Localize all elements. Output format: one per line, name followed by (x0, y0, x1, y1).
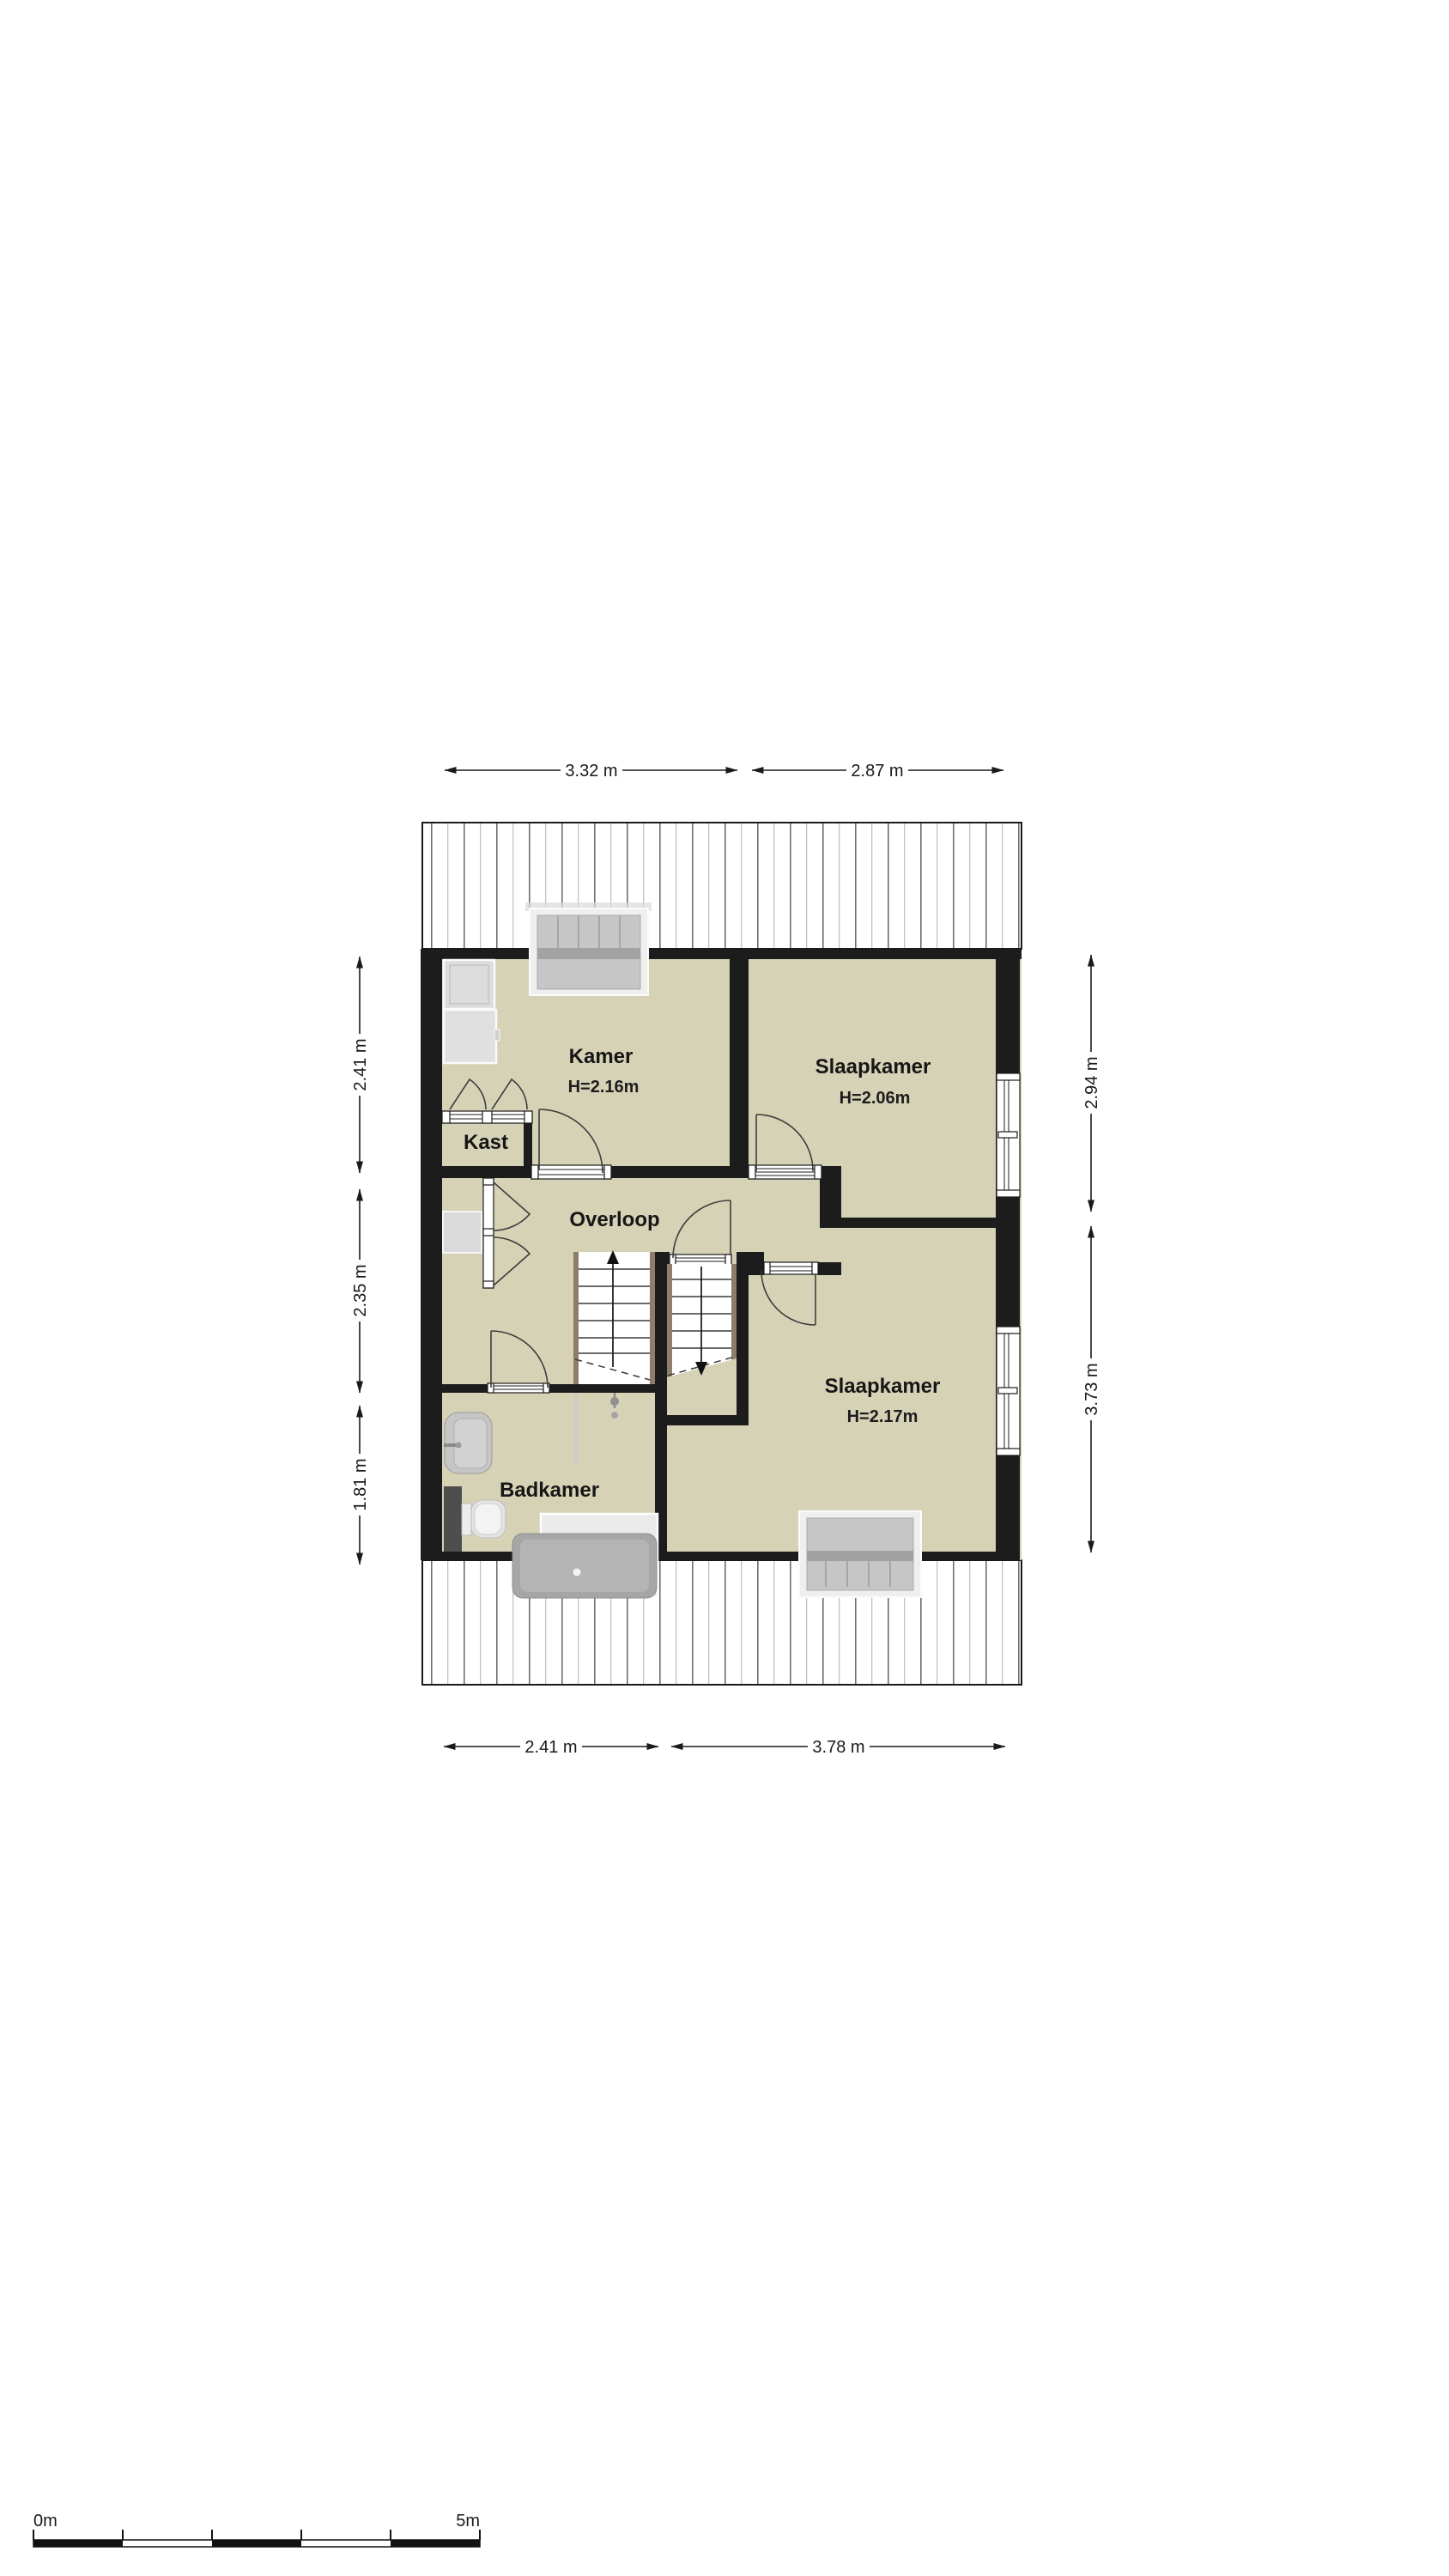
wall-stair-south (667, 1415, 749, 1425)
stairs-down-icon (667, 1264, 737, 1415)
stairs-up-icon (573, 1250, 655, 1384)
scale-start-label: 0m (33, 2512, 58, 2530)
room-label-badkamer: Badkamer (500, 1479, 599, 1502)
stairs-door-threshold (670, 1255, 731, 1265)
dim-label: 2.41 m (524, 1738, 577, 1757)
scale-end-label: 5m (456, 2512, 480, 2530)
dormer-window-bottom-icon (799, 1511, 921, 1597)
badkamer-door-threshold (488, 1383, 549, 1393)
room-label-kast: Kast (464, 1131, 508, 1154)
dormer-window-top-icon (525, 902, 652, 995)
room-label-kamer: Kamer (569, 1045, 634, 1068)
wall-slaapkamer-divider (841, 1218, 996, 1228)
slaapkamer2-door-threshold (764, 1262, 818, 1274)
wall-slaapkamer2-door-jamb (818, 1262, 841, 1275)
roof-hatch-top (422, 823, 1022, 949)
wall-west (421, 949, 442, 1560)
room-label-slaapkamer-boven: Slaapkamer (815, 1055, 931, 1078)
wall-stair-east (737, 1252, 749, 1425)
wall-badkamer-north-left (442, 1384, 488, 1393)
room-label-overloop: Overloop (569, 1208, 659, 1231)
dim-label: 2.87 m (851, 762, 903, 781)
wall-east (996, 949, 1020, 1560)
dim-label: 3.73 m (1082, 1363, 1101, 1415)
floorplan-canvas: Kamer H=2.16m Slaapkamer H=2.06m Kast Ov… (0, 0, 1449, 2576)
dim-label: 2.94 m (1082, 1056, 1101, 1109)
wall-badkamer-north-right (549, 1384, 655, 1393)
room-height-slaapkamer-onder: H=2.17m (847, 1407, 919, 1426)
dim-label: 2.41 m (351, 1038, 370, 1091)
wall-jog (820, 1166, 841, 1228)
niche-cabinet-icon (443, 1212, 482, 1253)
sink-icon (444, 1413, 492, 1473)
room-height-kamer: H=2.16m (568, 1078, 640, 1097)
dim-label: 3.78 m (812, 1738, 864, 1757)
slaapkamer1-door-threshold (749, 1165, 822, 1179)
wardrobe-icon (444, 960, 500, 1063)
wall-kamer-south (611, 1166, 730, 1178)
dim-label: 3.32 m (565, 762, 617, 781)
window-east-1 (997, 1073, 1020, 1197)
window-east-2 (997, 1327, 1020, 1455)
niche-doors-frame (483, 1178, 494, 1288)
dim-label: 1.81 m (351, 1458, 370, 1510)
kast-doors-frame (442, 1111, 532, 1123)
wall-south-left (421, 1552, 513, 1560)
kamer-door-threshold (531, 1165, 611, 1179)
wall-kamer-slaapkamer (730, 959, 749, 1178)
radiator-icon (444, 1486, 462, 1552)
wall-kast-south (442, 1166, 531, 1178)
room-height-slaapkamer-boven: H=2.06m (840, 1089, 911, 1108)
toilet-icon (462, 1500, 506, 1538)
wall-north (421, 949, 1022, 959)
room-label-slaapkamer-onder: Slaapkamer (825, 1375, 941, 1398)
dim-label: 2.35 m (351, 1264, 370, 1316)
